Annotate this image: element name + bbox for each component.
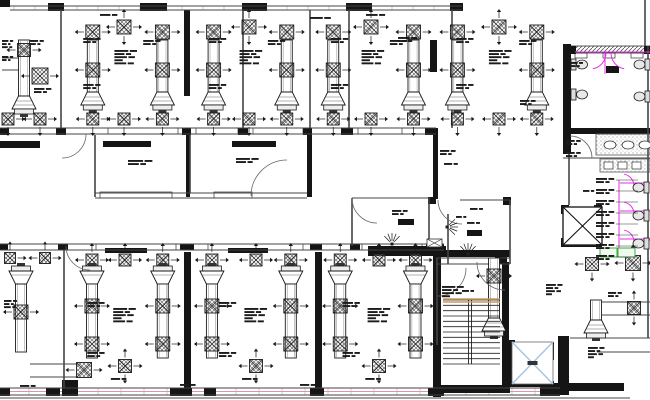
annotation-text-block — [2, 56, 13, 61]
exhaust-hood-icon — [403, 263, 427, 284]
ceiling-diffuser-icon — [628, 291, 641, 326]
annotation-text-block — [596, 178, 614, 183]
ceiling-diffuser-icon — [322, 337, 358, 351]
annotation-text-block — [392, 210, 408, 215]
annotation-text-block — [128, 160, 152, 165]
ceiling-diffuser-icon — [145, 299, 181, 313]
exhaust-hood-icon — [202, 92, 226, 113]
annotation-text-block — [546, 284, 562, 295]
patient-room-top — [75, 9, 181, 136]
duct-riser-icon — [591, 300, 602, 320]
exhaust-hood-icon — [445, 92, 469, 113]
annotation-text-block — [113, 308, 136, 322]
door-swing-arc — [570, 136, 592, 158]
ceiling-diffuser-icon — [397, 337, 433, 351]
ceiling-diffuser-icon — [482, 113, 516, 136]
door-swing-arc — [438, 200, 462, 224]
sink-icon — [604, 141, 616, 149]
floor-plan-screenshot — [0, 0, 650, 400]
floor-plan-canvas — [0, 0, 650, 400]
exhaust-hood-icon — [81, 92, 105, 113]
toilet-icon — [633, 210, 649, 221]
ceiling-diffuser-icon — [519, 25, 555, 39]
ceiling-diffuser-icon — [196, 25, 232, 39]
annotation-text-block — [4, 300, 17, 308]
annotation-text-block — [588, 347, 604, 358]
ceiling-diffuser-icon — [196, 63, 232, 77]
ceiling-diffuser-icon — [439, 25, 475, 39]
door-swing-arc — [62, 134, 86, 158]
ceiling-diffuser-icon — [575, 258, 610, 282]
annotation-text-block — [462, 290, 474, 292]
exhaust-hood-icon — [275, 92, 299, 113]
ceiling-diffuser-icon — [269, 63, 305, 77]
annotation-text-block — [596, 200, 614, 205]
annotation-text-block — [362, 50, 385, 64]
sink-icon — [622, 141, 634, 149]
annotation-text-block — [111, 378, 127, 380]
exhaust-hood-icon — [279, 263, 303, 284]
annotation-text-block — [244, 308, 267, 322]
annotation-text-block — [114, 50, 137, 64]
ceiling-diffuser-icon — [106, 9, 142, 45]
ceiling-diffuser-icon — [315, 63, 351, 77]
ceiling-diffuser-icon — [273, 337, 309, 351]
ceiling-diffuser-icon — [7, 44, 42, 57]
sink-icon — [639, 141, 650, 149]
toilet-icon — [634, 59, 650, 70]
door-swing-arc — [352, 198, 377, 223]
exhaust-hood-icon — [12, 96, 36, 117]
toilet-icon — [634, 91, 650, 102]
exhaust-hood-icon — [584, 320, 608, 341]
ceiling-diffuser-icon — [74, 337, 110, 351]
annotation-text-block — [368, 308, 391, 322]
ceiling-diffuser-icon — [519, 63, 555, 77]
annotation-text-block — [236, 158, 259, 163]
annotation-text-block — [310, 17, 331, 19]
ceiling-diffuser-icon — [194, 337, 230, 351]
exhaust-hood-icon — [200, 263, 224, 284]
annotation-text-block — [300, 384, 316, 386]
toilet-icon — [633, 238, 649, 249]
exhaust-hood-icon — [401, 92, 425, 113]
annotation-text-block — [440, 150, 456, 155]
annotation-text-block — [2, 40, 13, 48]
ceiling-diffuser-icon — [144, 63, 180, 77]
door-swing-arc — [624, 202, 634, 214]
exhaust-hood-icon — [80, 263, 104, 284]
ceiling-diffuser-icon — [144, 25, 180, 39]
ceiling-diffuser-icon — [231, 9, 267, 45]
annotation-text-block — [444, 163, 458, 165]
patient-room-top — [315, 9, 431, 136]
ceiling-diffuser-icon — [315, 25, 351, 39]
annotation-text-block — [30, 40, 44, 45]
annotation-text-block — [467, 222, 480, 224]
door-swing-arc — [624, 230, 634, 242]
exhaust-hood-icon — [525, 92, 549, 113]
annotation-text-block — [470, 208, 483, 210]
exhaust-hood-icon — [328, 263, 352, 284]
ceiling-diffuser-icon — [145, 337, 181, 351]
ceiling-diffuser-icon — [75, 63, 111, 77]
exhaust-hood-icon — [150, 92, 174, 113]
ceiling-diffuser-icon — [397, 299, 433, 313]
annotation-text-block — [34, 88, 51, 93]
ceiling-diffuser-icon — [395, 25, 431, 39]
toilet-icon — [571, 59, 588, 70]
annotation-text-block — [456, 216, 466, 218]
exhaust-hood-icon — [9, 263, 33, 284]
ceiling-diffuser-icon — [520, 113, 554, 136]
ceiling-diffuser-icon — [395, 63, 431, 77]
ceiling-diffuser-icon — [273, 299, 309, 313]
ceiling-diffuser-icon — [75, 25, 111, 39]
ceiling-diffuser-icon — [269, 25, 305, 39]
door-swing-arc — [251, 160, 287, 196]
patient-room-top — [196, 9, 305, 136]
annotation-text-block — [100, 14, 117, 16]
ceiling-diffuser-icon — [23, 113, 57, 136]
ceiling-diffuser-icon — [76, 113, 110, 136]
toilet-icon — [633, 182, 649, 193]
ceiling-diffuser-icon — [440, 113, 474, 136]
annotation-text-block — [489, 50, 512, 64]
exhaust-hood-icon — [151, 263, 175, 284]
annotation-text-block — [608, 292, 622, 297]
annotation-text-block — [242, 378, 258, 380]
annotation-text-block — [180, 384, 196, 386]
annotation-text-block — [366, 14, 385, 16]
ceiling-diffuser-icon — [439, 63, 475, 77]
toilet-icon — [571, 89, 588, 100]
elevator-shaft — [512, 342, 553, 384]
patient-room-top — [439, 9, 554, 136]
annotation-text-block — [596, 189, 614, 194]
exhaust-hood-icon — [321, 92, 345, 113]
door-swing-arc — [438, 268, 466, 296]
ceiling-diffuser-icon — [29, 242, 62, 264]
annotation-text-block — [219, 352, 236, 357]
annotation-text-block — [20, 385, 36, 387]
annotation-text-block — [365, 378, 381, 380]
annotation-text-block — [583, 190, 594, 192]
ceiling-diffuser-icon — [66, 363, 103, 378]
patient-room-bottom — [194, 243, 309, 384]
ceiling-diffuser-icon — [481, 9, 517, 45]
patient-room-bottom — [322, 243, 433, 384]
